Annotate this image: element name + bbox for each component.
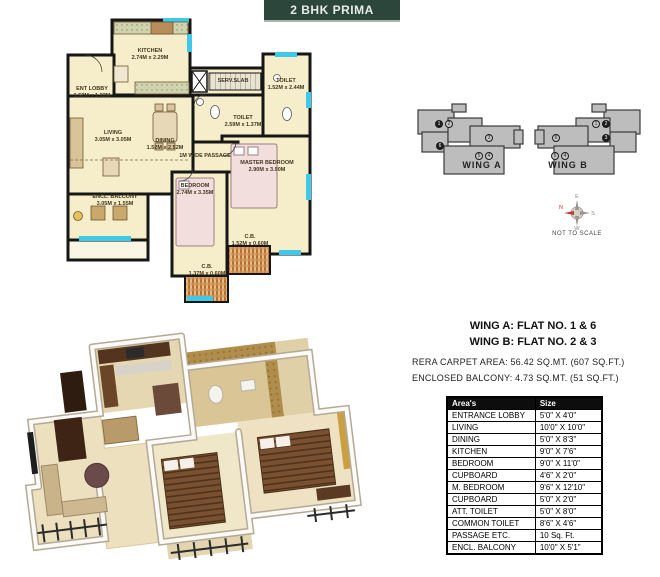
floor-plan-2d: KITCHEN2.74M x 2.29M ENT LOBBY1.52M x 1.… (55, 8, 320, 310)
wing-b-flat-marker: 2 (602, 120, 610, 128)
wing-a-label: WING A (462, 160, 501, 170)
header-size: Size (535, 397, 602, 410)
floor-plan-3d-render (10, 316, 402, 574)
passage-label: 1M WIDE PASSAGE (179, 153, 231, 160)
table-header-row: Area's Size (447, 397, 602, 410)
area-size-table: Area's Size ENTRANCE LOBBY5'0" X 4'0" LI… (446, 396, 603, 555)
wing-a-flat-marker: 1 (435, 120, 443, 128)
room-label-cb-small: C.B.1.37M x 0.60M (189, 264, 226, 278)
table-row: COMMON TOILET8'6" X 4'6" (447, 518, 602, 530)
serv-slab-label: SERV.SLAB (218, 78, 249, 85)
wing-a-flat-marker: 3 (485, 134, 493, 142)
table-row: PASSAGE ETC.10 Sq. Ft. (447, 530, 602, 542)
table-row: KITCHEN9'0" X 7'6" (447, 446, 602, 458)
room-label-toilet-attached: TOILET1.52M x 2.44M (268, 78, 305, 92)
enclosed-balcony-line: ENCLOSED BALCONY: 4.73 SQ.MT. (51 SQ.FT.… (412, 371, 660, 387)
compass-icon: E N S W (558, 192, 596, 230)
table-row: CUPBOARD4'6" X 2'0" (447, 470, 602, 482)
room-label-kitchen: KITCHEN2.74M x 2.29M (132, 48, 169, 62)
area-info: RERA CARPET AREA: 56.42 SQ.MT. (607 SQ.F… (412, 355, 660, 387)
room-label-ent-lobby: ENT LOBBY1.52M x 1.22M (74, 86, 111, 100)
wing-b-flat-marker: 5 (551, 152, 559, 160)
wing-b-flat-marker: 4 (561, 152, 569, 160)
wing-location-diagram: 1 2 3 5 4 6 1 2 3 6 5 4 WING A WING B E … (408, 92, 653, 252)
wing-a-flat-marker: 6 (436, 142, 444, 150)
table-row: DINING5'0" X 8'3" (447, 434, 602, 446)
room-label-dining: DINING1.52M x 2.52M (147, 138, 184, 152)
room-label-toilet-common: TOILET2.59M x 1.37M (225, 115, 262, 129)
svg-text:S: S (591, 211, 595, 217)
wing-a-flat-marker: 5 (475, 152, 483, 160)
room-label-master-bedroom: MASTER BEDROOM2.90M x 3.90M (240, 160, 293, 174)
svg-text:W: W (574, 226, 580, 230)
table-row: ATT. TOILET5'0" X 8'0" (447, 506, 602, 518)
table-row: M. BEDROOM9'6" X 12'10" (447, 482, 602, 494)
table-row: BEDROOM9'0" X 11'0" (447, 458, 602, 470)
wing-b-flat-marker: 6 (552, 134, 560, 142)
svg-text:E: E (575, 194, 579, 200)
room-label-encl-balcony: ENCL. BALCONY3.05M x 1.55M (92, 194, 137, 208)
wing-a-flats-line: WING A: FLAT NO. 1 & 6 (408, 319, 658, 335)
rera-carpet-area-line: RERA CARPET AREA: 56.42 SQ.MT. (607 SQ.F… (412, 355, 660, 371)
wing-b-flat-marker: 1 (592, 120, 600, 128)
wing-a-flat-marker: 2 (445, 120, 453, 128)
room-label-living: LIVING3.05M x 3.05M (95, 130, 132, 144)
svg-text:N: N (559, 205, 563, 211)
table-row: CUPBOARD5'0" X 2'0" (447, 494, 602, 506)
header-areas: Area's (447, 397, 535, 410)
table-row: ENTRANCE LOBBY5'0" X 4'0" (447, 410, 602, 422)
wing-b-label: WING B (548, 160, 588, 170)
table-row: LIVING10'0" X 10'0" (447, 422, 602, 434)
room-label-bedroom: BEDROOM2.74M x 3.35M (177, 183, 214, 197)
wing-b-flats-line: WING B: FLAT NO. 2 & 3 (408, 335, 658, 351)
brochure-page: 2 BHK PRIMA (0, 0, 660, 577)
floor-plan-3d-graphic (10, 316, 402, 574)
wing-a-flat-marker: 4 (485, 152, 493, 160)
not-to-scale-note: NOT TO SCALE (540, 231, 614, 237)
wing-flat-info: WING A: FLAT NO. 1 & 6 WING B: FLAT NO. … (408, 319, 658, 351)
wing-b-flat-marker: 3 (602, 134, 610, 142)
table-row: ENCL. BALCONY10'0" X 5'1" (447, 542, 602, 555)
room-label-cb-large: C.B.1.52M x 0.60M (232, 234, 269, 248)
